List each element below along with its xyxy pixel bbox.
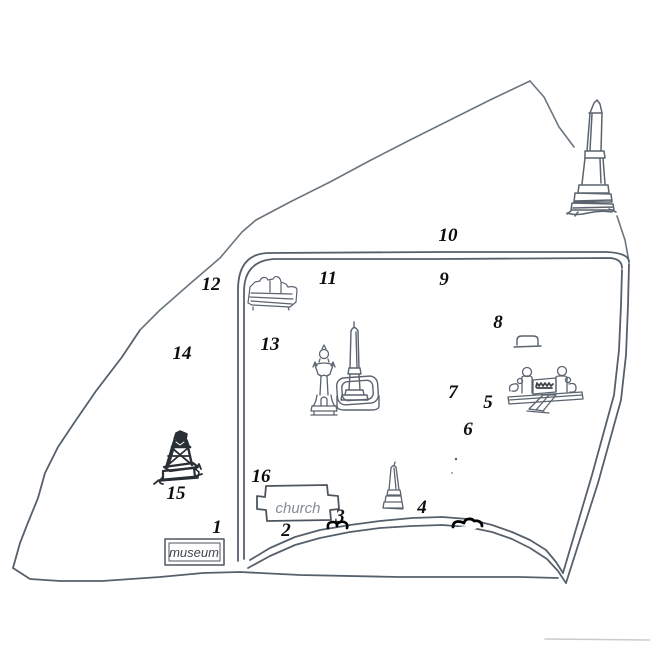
- svg-text:1: 1: [212, 517, 222, 538]
- svg-text:church: church: [275, 500, 320, 517]
- svg-text:10: 10: [439, 225, 459, 246]
- svg-text:4: 4: [416, 497, 427, 518]
- svg-text:14: 14: [173, 343, 192, 364]
- svg-text:3: 3: [334, 506, 345, 527]
- svg-text:6: 6: [463, 419, 473, 440]
- svg-text:15: 15: [167, 483, 187, 504]
- svg-text:5: 5: [483, 392, 493, 413]
- svg-text:8: 8: [493, 312, 503, 333]
- svg-text:7: 7: [448, 382, 459, 403]
- svg-text:12: 12: [202, 274, 222, 295]
- svg-text:2: 2: [280, 520, 291, 541]
- svg-text:museum: museum: [169, 545, 219, 560]
- svg-text:9: 9: [439, 269, 449, 290]
- svg-text:13: 13: [261, 334, 280, 355]
- svg-text:11: 11: [319, 268, 337, 289]
- svg-text:16: 16: [252, 466, 272, 487]
